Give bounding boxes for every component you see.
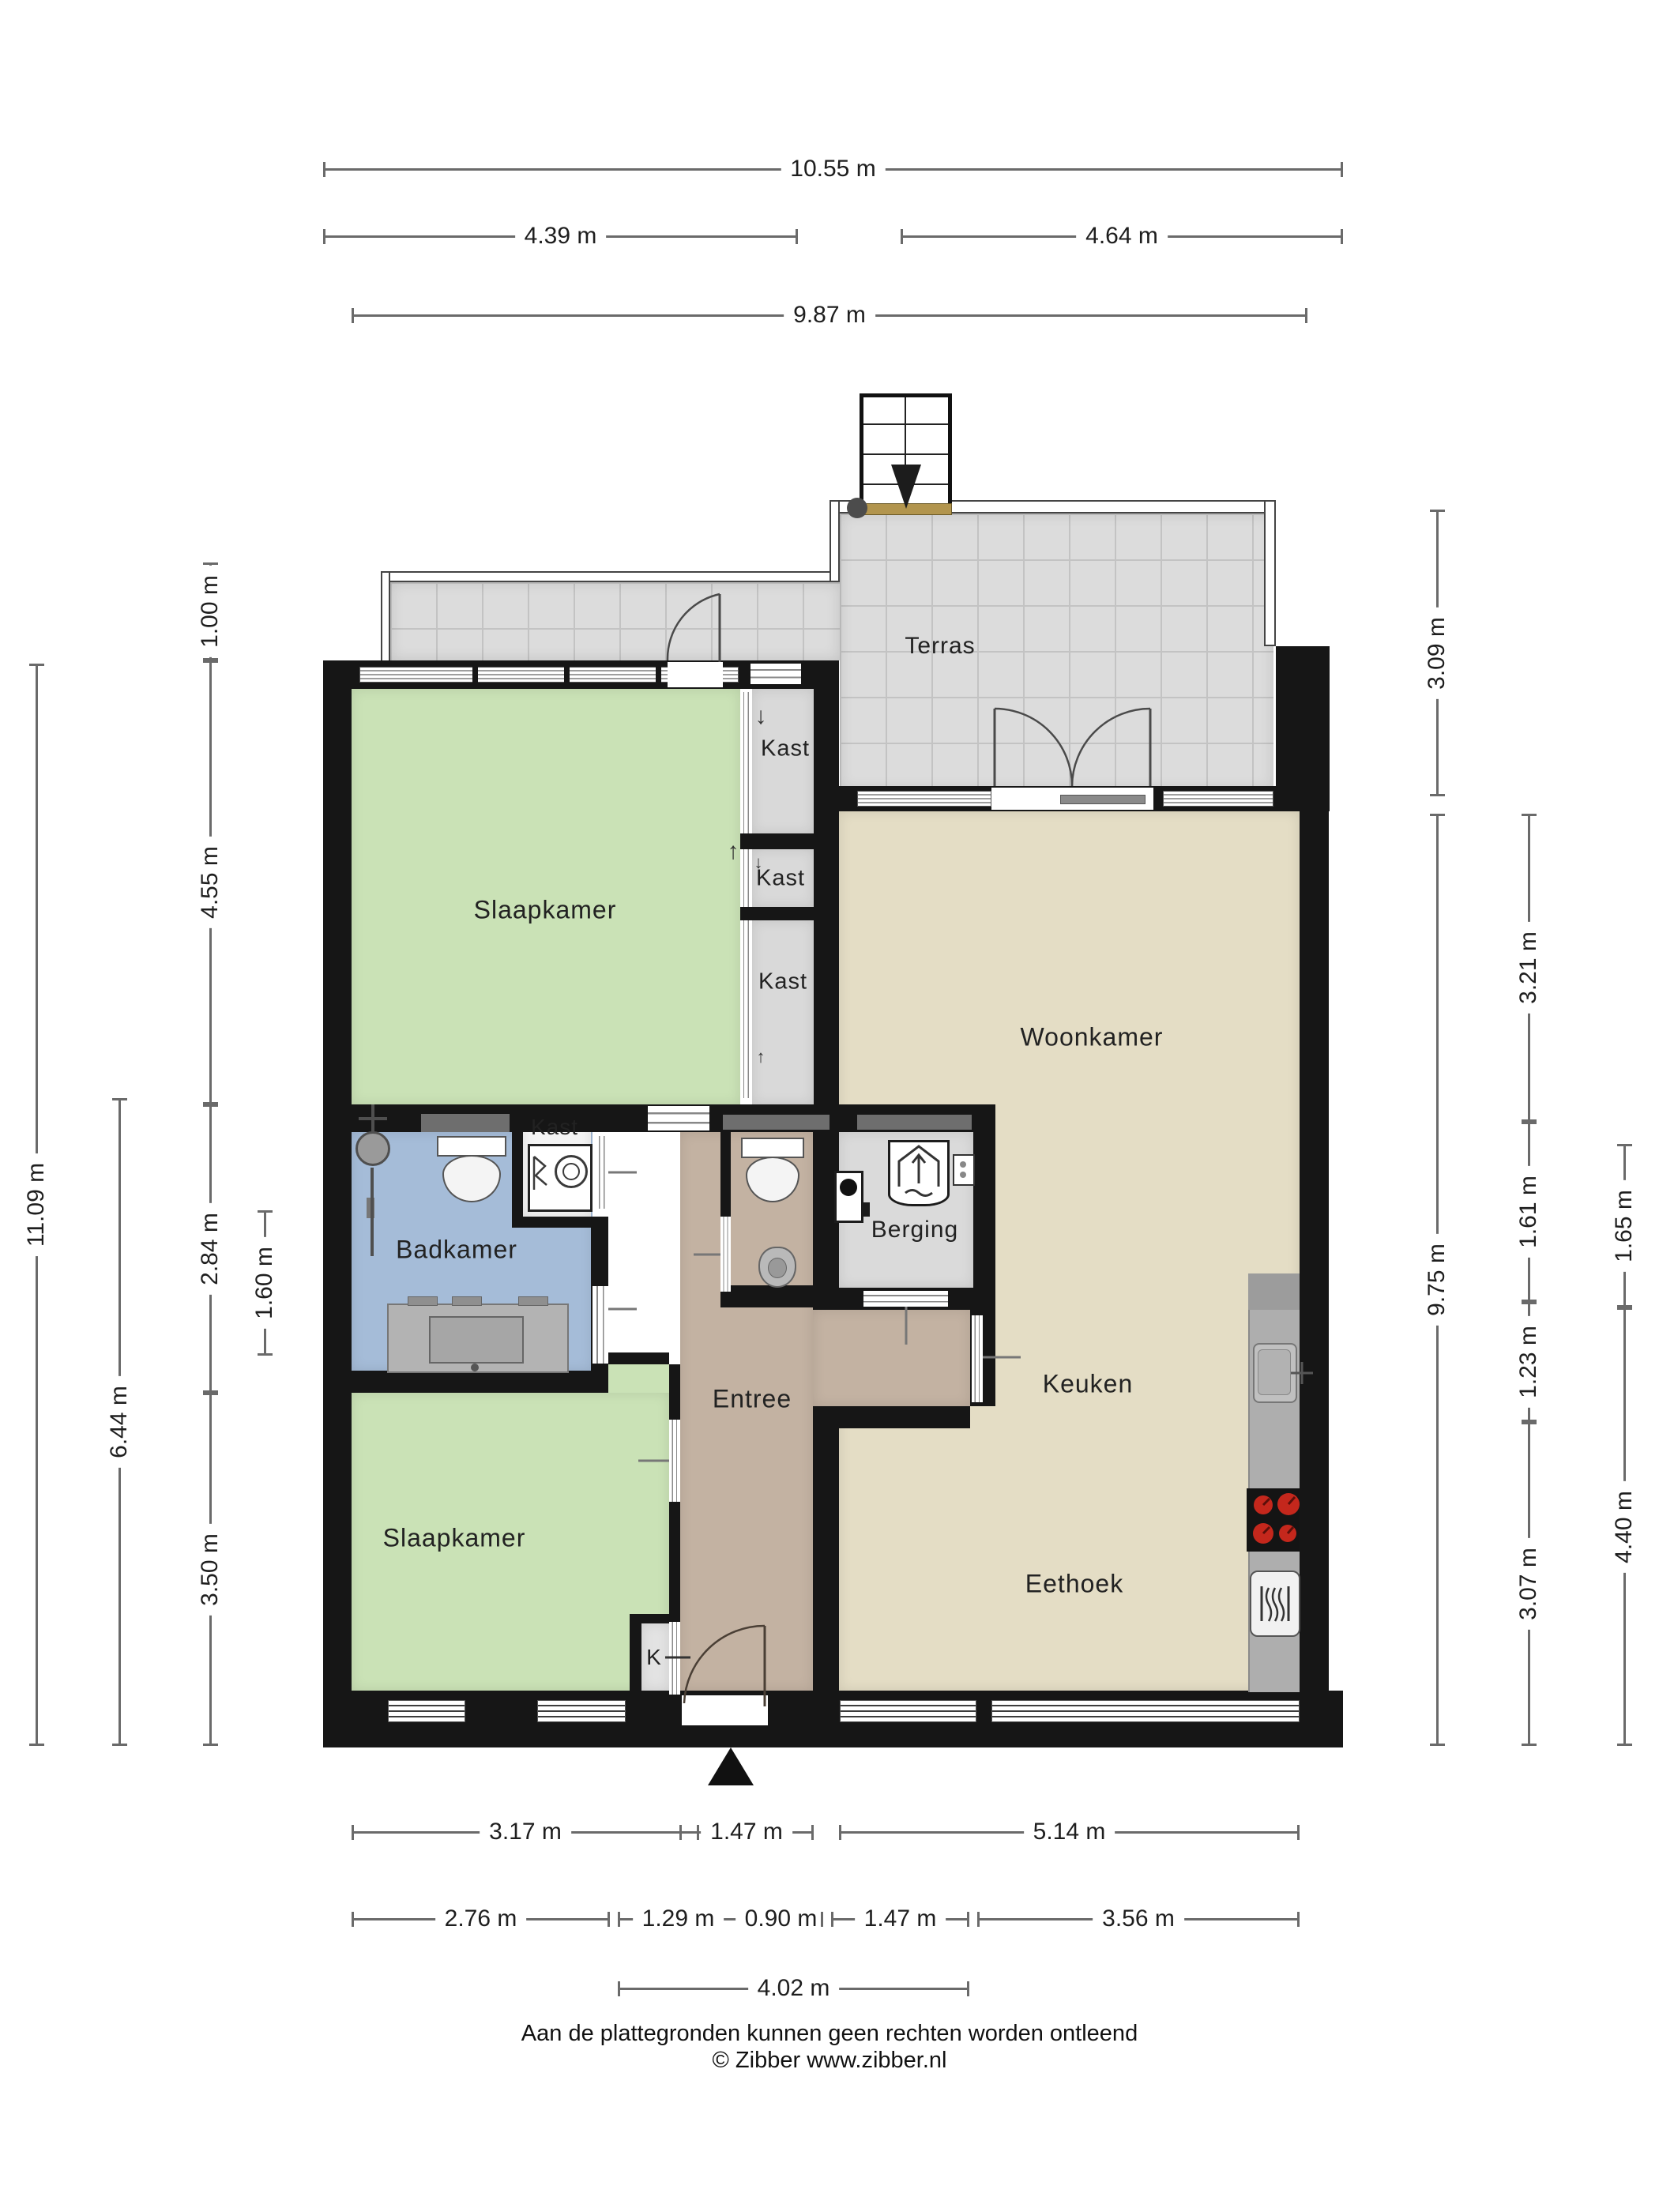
window-woonkamer-right bbox=[1163, 791, 1273, 807]
staircase-tread bbox=[863, 453, 948, 455]
dim-bottom-147b: 1.47 m bbox=[831, 1918, 969, 1920]
room-label-k-closet: K bbox=[646, 1645, 662, 1670]
dim-left-350: 3.50 m bbox=[209, 1393, 212, 1746]
vanity-basin bbox=[429, 1316, 524, 1364]
wall-toilet-bottom bbox=[720, 1285, 813, 1307]
door-badkamer bbox=[592, 1286, 608, 1364]
burner bbox=[1277, 1493, 1300, 1515]
terrace-railing-top-left bbox=[381, 571, 840, 582]
door-threshold bbox=[1060, 795, 1145, 804]
dim-right-321: 3.21 m bbox=[1528, 814, 1530, 1122]
stairs-down-arrow-icon bbox=[891, 465, 921, 509]
burner bbox=[1254, 1495, 1273, 1514]
toilet-tank-wc bbox=[741, 1138, 804, 1158]
dim-bottom-356: 3.56 m bbox=[977, 1918, 1300, 1920]
dim-left-284: 2.84 m bbox=[209, 1104, 212, 1393]
entrance-arrow-icon bbox=[708, 1747, 754, 1785]
terrace-railing-right bbox=[1264, 500, 1276, 646]
dim-left-1109: 11.09 m bbox=[36, 664, 38, 1746]
front-door-opening bbox=[682, 1695, 768, 1725]
wc-sink-basin bbox=[768, 1258, 787, 1278]
dim-top-987: 9.87 m bbox=[352, 314, 1307, 317]
dim-left-455: 4.55 m bbox=[209, 660, 212, 1104]
lintel-toilet bbox=[723, 1115, 829, 1130]
room-entree-extension bbox=[813, 1310, 970, 1406]
kitchen-counter-top-block bbox=[1248, 1273, 1300, 1310]
dim-top-439: 4.39 m bbox=[323, 235, 798, 238]
footer-disclaimer: Aan de plattegronden kunnen geen rechten… bbox=[521, 2021, 1138, 2047]
shower-head-icon bbox=[355, 1131, 390, 1166]
window-slaapkamer2-b bbox=[537, 1700, 626, 1722]
burner bbox=[1253, 1523, 1273, 1544]
dim-bottom-317: 3.17 m bbox=[352, 1831, 699, 1834]
wall-berging-east bbox=[973, 1104, 995, 1310]
door-kast4 bbox=[596, 1136, 608, 1209]
stair-threshold-knob bbox=[847, 498, 867, 518]
toilet-tank-badkamer bbox=[437, 1136, 506, 1157]
room-label-terras: Terras bbox=[905, 633, 975, 660]
dim-top-1055: 10.55 m bbox=[323, 168, 1343, 171]
room-label-entree: Entree bbox=[713, 1385, 792, 1414]
thermostat-panel-icon bbox=[953, 1154, 975, 1186]
wall-extension-bottom bbox=[839, 1406, 970, 1428]
door-kast1-top bbox=[750, 664, 801, 684]
wall-kast4-bottom bbox=[512, 1217, 608, 1228]
dim-left-100: 1.00 m bbox=[209, 562, 212, 660]
lintel-badkamer bbox=[421, 1114, 510, 1132]
door-toilet bbox=[720, 1217, 731, 1292]
wall-right-corner-block bbox=[1276, 646, 1330, 811]
floor-plan: Terras Slaapkamer Kast Kast Kast Woonkam… bbox=[0, 0, 1659, 2212]
window-mullion bbox=[472, 667, 478, 683]
dim-right-440: 4.40 m bbox=[1623, 1307, 1626, 1746]
washing-machine-drum-inner bbox=[562, 1163, 580, 1180]
room-kast-3 bbox=[752, 920, 814, 1104]
wall-kast4-left bbox=[512, 1104, 523, 1228]
window-eethoek-a bbox=[840, 1700, 976, 1722]
door-kast2 bbox=[740, 849, 752, 907]
window-mullion bbox=[564, 667, 570, 683]
thermostat-dot bbox=[960, 1161, 966, 1168]
door-opening-terras bbox=[668, 662, 723, 687]
dim-bottom-147a: 1.47 m bbox=[679, 1831, 814, 1834]
vanity-faucet-dot bbox=[471, 1364, 479, 1371]
dim-bottom-090: 0.90 m bbox=[739, 1918, 823, 1920]
dim-right-975: 9.75 m bbox=[1436, 814, 1439, 1746]
dim-bottom-276: 2.76 m bbox=[352, 1918, 610, 1920]
dim-top-464: 4.64 m bbox=[901, 235, 1343, 238]
dim-right-307: 3.07 m bbox=[1528, 1422, 1530, 1746]
window-slaapkamer2-a bbox=[388, 1700, 465, 1722]
room-label-woonkamer: Woonkamer bbox=[1021, 1023, 1164, 1052]
kast3-arrow-up-icon: ↑ bbox=[757, 1047, 766, 1067]
slaapkamer1-arrow-up-icon: ↑ bbox=[728, 838, 739, 865]
room-label-kast-4: Kast bbox=[531, 1115, 578, 1140]
wall-badkamer-bottom bbox=[323, 1371, 608, 1393]
vanity-handle bbox=[452, 1296, 482, 1306]
window-woonkamer-left bbox=[857, 791, 991, 807]
wall-kcloset-left bbox=[630, 1614, 641, 1693]
wall-kast-east bbox=[814, 660, 839, 1132]
wall-entree-east-lower bbox=[813, 1406, 839, 1691]
footer-copyright: © Zibber www.zibber.nl bbox=[713, 2048, 947, 2074]
room-label-badkamer: Badkamer bbox=[396, 1236, 517, 1265]
dim-bottom-129: 1.29 m bbox=[618, 1918, 739, 1920]
wall-kast-separator-1 bbox=[740, 833, 814, 849]
staircase-tread bbox=[863, 423, 948, 425]
dim-bottom-514: 5.14 m bbox=[839, 1831, 1300, 1834]
door-kast3 bbox=[740, 920, 752, 1098]
room-label-keuken: Keuken bbox=[1043, 1370, 1134, 1399]
wall-left bbox=[323, 660, 352, 1747]
thermostat-dot bbox=[960, 1172, 966, 1178]
terrace-railing-left bbox=[381, 571, 390, 662]
dim-left-160: 1.60 m bbox=[264, 1210, 266, 1356]
door-berging bbox=[863, 1291, 948, 1307]
window-mullion bbox=[656, 667, 661, 683]
room-label-slaapkamer-1: Slaapkamer bbox=[474, 896, 617, 925]
wall-kcloset-top bbox=[630, 1614, 669, 1623]
room-label-kast-3: Kast bbox=[758, 969, 807, 995]
dim-right-161: 1.61 m bbox=[1528, 1122, 1530, 1302]
door-k-closet bbox=[669, 1622, 680, 1695]
room-label-kast-1: Kast bbox=[761, 736, 810, 762]
kitchen-sink-basin bbox=[1258, 1349, 1291, 1395]
door-slaapkamer1 bbox=[648, 1106, 709, 1130]
shower-rail-slider bbox=[367, 1198, 374, 1218]
kast1-arrow-down-icon: ↓ bbox=[755, 703, 767, 730]
dim-right-123: 1.23 m bbox=[1528, 1302, 1530, 1422]
dim-right-309: 3.09 m bbox=[1436, 510, 1439, 796]
oven-icon bbox=[1250, 1571, 1300, 1637]
terrace-tiles-left bbox=[390, 582, 840, 660]
vanity-handle bbox=[518, 1296, 548, 1306]
dim-right-165: 1.65 m bbox=[1623, 1144, 1626, 1307]
dim-bottom-402: 4.02 m bbox=[618, 1988, 969, 1990]
room-label-kast-2: Kast bbox=[756, 866, 805, 892]
vanity-handle bbox=[408, 1296, 438, 1306]
door-kast1 bbox=[740, 692, 752, 833]
wall-right bbox=[1300, 799, 1329, 1747]
ventilation-unit-icon bbox=[888, 1140, 950, 1206]
dim-left-644: 6.44 m bbox=[118, 1098, 121, 1746]
window-eethoek-b bbox=[991, 1700, 1300, 1722]
intercom-dot bbox=[840, 1179, 857, 1196]
wall-kast-separator-2 bbox=[740, 907, 814, 920]
door-slaapkamer2 bbox=[669, 1420, 680, 1502]
burner bbox=[1279, 1525, 1296, 1542]
room-label-slaapkamer-2: Slaapkamer bbox=[383, 1524, 526, 1553]
room-label-eethoek: Eethoek bbox=[1025, 1570, 1123, 1599]
passage-keuken bbox=[972, 1315, 983, 1402]
kast2-arrow-down-icon: ↓ bbox=[754, 852, 763, 873]
lintel-berging bbox=[857, 1115, 972, 1130]
room-label-berging: Berging bbox=[871, 1217, 958, 1243]
intercom-tab bbox=[863, 1202, 870, 1217]
terrace-railing-step bbox=[829, 500, 840, 582]
